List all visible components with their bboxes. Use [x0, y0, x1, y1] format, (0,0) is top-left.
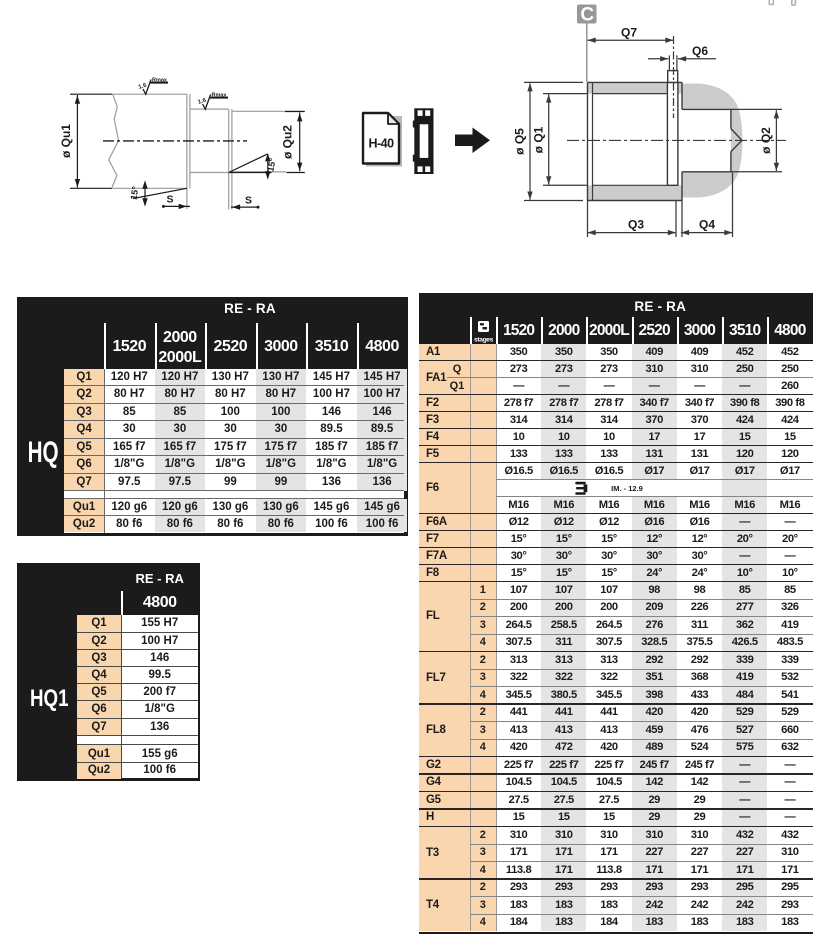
- svg-text:Q6: Q6: [692, 44, 708, 58]
- svg-text:S: S: [166, 194, 173, 206]
- svg-text:ø Q5: ø Q5: [513, 128, 527, 155]
- svg-text:H-40: H-40: [368, 137, 394, 151]
- svg-text:Q3: Q3: [628, 218, 644, 232]
- svg-text:15°: 15°: [265, 157, 278, 173]
- svg-text:15°: 15°: [128, 185, 140, 201]
- svg-text:ø Qu2: ø Qu2: [281, 125, 295, 159]
- svg-text:1.6: 1.6: [138, 82, 148, 90]
- svg-text:ø Qu1: ø Qu1: [59, 124, 73, 158]
- svg-text:Q4: Q4: [699, 218, 715, 232]
- svg-text:stages: stages: [474, 337, 494, 344]
- svg-text:S: S: [245, 194, 252, 206]
- svg-text:Rmax: Rmax: [152, 78, 168, 84]
- svg-text:1.6: 1.6: [197, 97, 207, 105]
- svg-text:Q7: Q7: [621, 26, 637, 40]
- svg-text:ø Q2: ø Q2: [759, 127, 773, 154]
- svg-text:C: C: [580, 5, 594, 26]
- svg-text:Rmax: Rmax: [212, 93, 228, 99]
- svg-text:ø Q1: ø Q1: [532, 126, 546, 153]
